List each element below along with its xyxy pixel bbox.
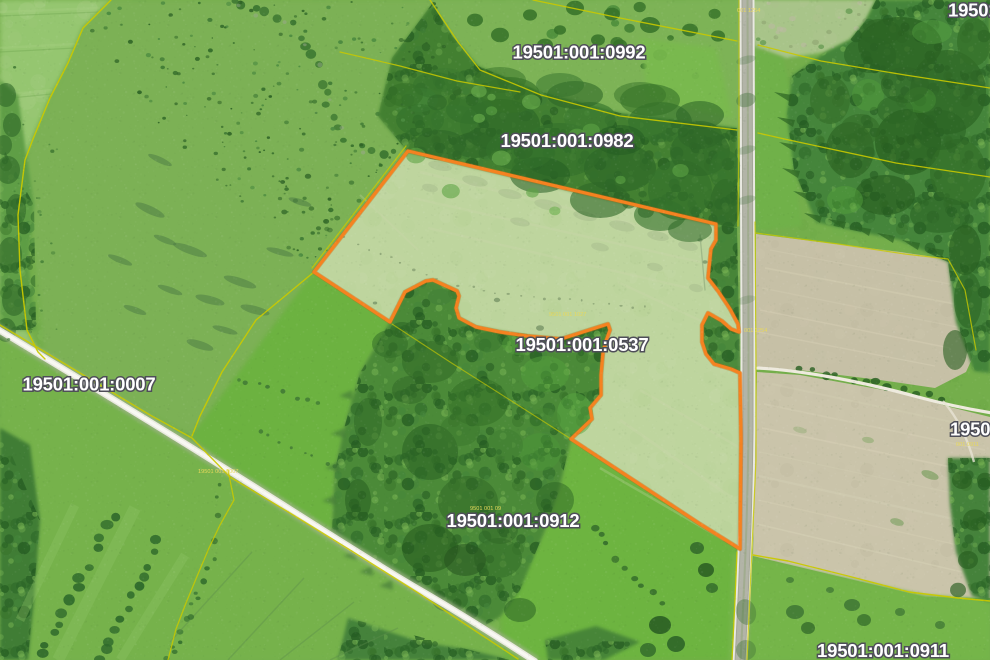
svg-text:19501:001:0982: 19501:001:0982 xyxy=(501,130,634,151)
svg-text:001 1254: 001 1254 xyxy=(744,328,767,334)
svg-text:19501:0: 19501:0 xyxy=(950,419,990,440)
svg-text:001 1254: 001 1254 xyxy=(737,8,760,14)
svg-text:19501:00: 19501:00 xyxy=(948,0,990,21)
svg-text:9501 001 1027: 9501 001 1027 xyxy=(549,312,586,318)
svg-text:001 0911: 001 0911 xyxy=(956,442,979,448)
svg-text:19501:001:0911: 19501:001:0911 xyxy=(817,640,949,660)
svg-text:19501:001:0007: 19501:001:0007 xyxy=(23,374,156,395)
svg-text:9501 001 09: 9501 001 09 xyxy=(470,506,501,512)
svg-text:19501 001 0007: 19501 001 0007 xyxy=(198,469,238,475)
svg-text:19501:001:0992: 19501:001:0992 xyxy=(513,42,646,63)
svg-text:19501:001:0537: 19501:001:0537 xyxy=(516,334,649,355)
svg-text:19501:001:0912: 19501:001:0912 xyxy=(447,510,580,531)
